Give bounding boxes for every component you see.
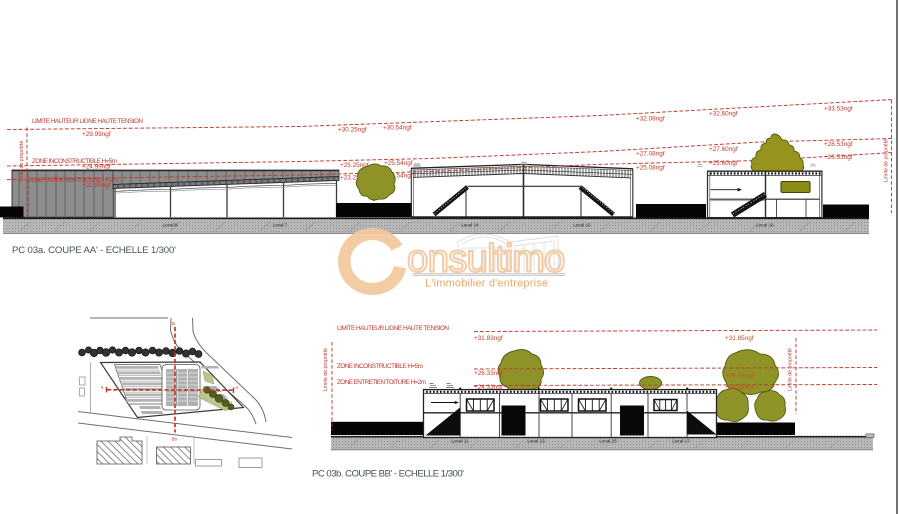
svg-text:Limite de propriété: Limite de propriété — [788, 348, 794, 391]
svg-text:PC 03b. COUPE BB' - ECHELLE 1/: PC 03b. COUPE BB' - ECHELLE 1/300' — [312, 469, 464, 480]
svg-text:+26.33ngf: +26.33ngf — [725, 373, 754, 380]
svg-text:+25.60ngf: +25.60ngf — [709, 160, 738, 167]
svg-text:+24.99ngf: +24.99ngf — [82, 163, 111, 170]
svg-text:+22.99ngf: +22.99ngf — [82, 182, 111, 189]
svg-text:Local 13: Local 13 — [527, 439, 545, 444]
svg-text:+28.53ngf: +28.53ngf — [824, 141, 853, 148]
svg-text:+31.83ngf: +31.83ngf — [474, 335, 503, 342]
svg-text:Local 16: Local 16 — [756, 223, 774, 228]
svg-text:Local 15: Local 15 — [599, 439, 617, 444]
svg-text:+27.60ngf: +27.60ngf — [709, 146, 738, 153]
svg-text:a': a' — [236, 385, 239, 390]
svg-text:+26.53ngf: +26.53ngf — [824, 154, 853, 161]
svg-text:Local 15: Local 15 — [573, 223, 591, 228]
svg-text:+33.53ngf: +33.53ngf — [824, 106, 853, 113]
svg-text:L'immobilier d'entreprise: L'immobilier d'entreprise — [425, 278, 548, 290]
svg-text:LIMITE HAUTEUR LIGNE HAUTE TEN: LIMITE HAUTEUR LIGNE HAUTE TENSION — [337, 325, 449, 332]
svg-text:ZONE ENTRETIEN TOITURE H=2m: ZONE ENTRETIEN TOITURE H=2m — [337, 379, 426, 386]
svg-text:+24.33ngf: +24.33ngf — [725, 384, 754, 391]
svg-text:+25.08ngf: +25.08ngf — [636, 165, 665, 172]
svg-text:+29.99ngf: +29.99ngf — [82, 131, 111, 138]
svg-text:+26.33ngf: +26.33ngf — [474, 370, 503, 377]
svg-text:ZONE INCONSTRUCTIBLE H=5m: ZONE INCONSTRUCTIBLE H=5m — [337, 363, 423, 370]
svg-text:Local 8: Local 8 — [163, 223, 178, 228]
svg-text:+32.08ngf: +32.08ngf — [636, 116, 665, 123]
svg-text:Local 14: Local 14 — [461, 223, 479, 228]
svg-text:Limite de propriété: Limite de propriété — [884, 139, 890, 182]
svg-text:+31.85ngf: +31.85ngf — [725, 335, 754, 342]
svg-text:Local 11: Local 11 — [451, 439, 468, 444]
svg-text:+27.08ngf: +27.08ngf — [636, 151, 665, 158]
svg-text:Limite de propriété: Limite de propriété — [323, 348, 329, 391]
svg-text:PC 03a. COUPE AA' - ECHELLE 1/: PC 03a. COUPE AA' - ECHELLE 1/300' — [12, 245, 176, 256]
svg-text:Local 17: Local 17 — [672, 439, 690, 444]
svg-text:+32.60ngf: +32.60ngf — [709, 111, 738, 118]
svg-text:Local 7: Local 7 — [273, 223, 288, 228]
svg-text:Bb: Bb — [172, 437, 178, 442]
svg-text:B: B — [172, 321, 175, 326]
svg-text:+30.25ngf: +30.25ngf — [338, 127, 367, 134]
svg-text:limite de propriété: limite de propriété — [19, 141, 25, 182]
svg-text:+30.54ngf: +30.54ngf — [383, 125, 412, 132]
svg-text:+25.54ngf: +25.54ngf — [384, 160, 413, 167]
svg-text:+24.33ngf: +24.33ngf — [474, 384, 503, 391]
svg-text:LIMITE HAUTEUR LIGNE HAUTE TEN: LIMITE HAUTEUR LIGNE HAUTE TENSION — [32, 118, 143, 125]
